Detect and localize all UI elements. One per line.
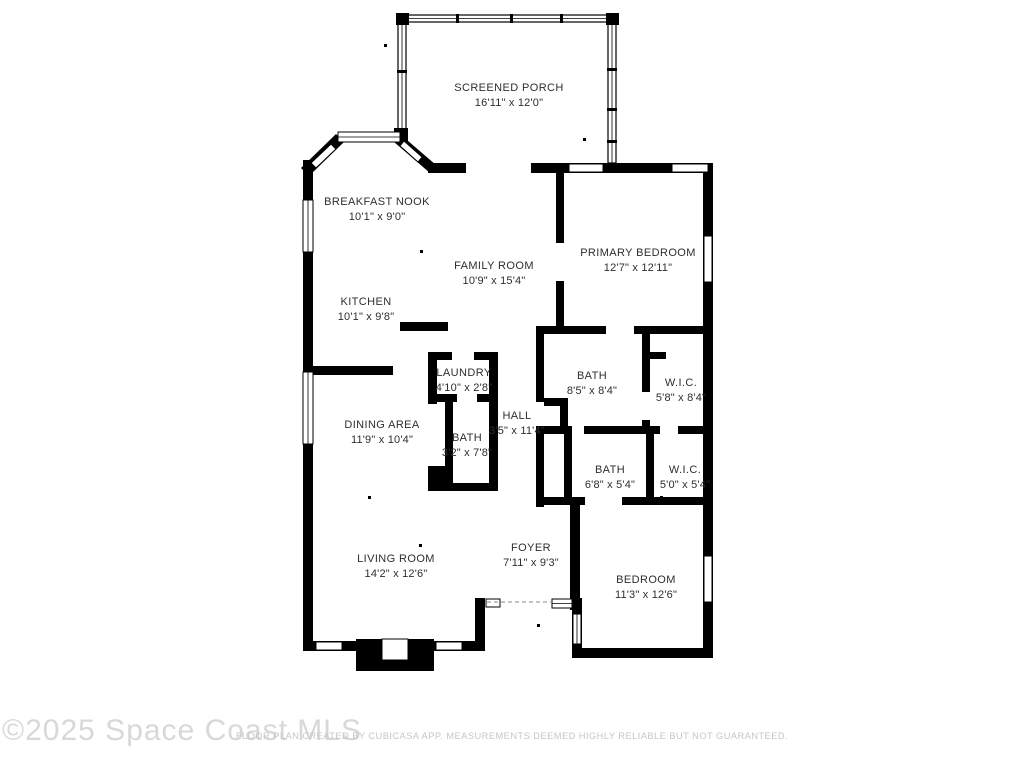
interior-walls	[303, 173, 713, 600]
dimension-ticks	[368, 44, 663, 627]
room-label-living-room: LIVING ROOM	[357, 553, 435, 565]
room-dims-bedroom: 11'3" x 12'6"	[615, 589, 677, 601]
room-label-breakfast-nook: BREAKFAST NOOK	[324, 196, 430, 208]
room-label-hall: HALL	[502, 410, 531, 422]
room-label-foyer: FOYER	[511, 542, 551, 554]
room-label-kitchen: KITCHEN	[340, 296, 391, 308]
room-label-screened-porch: SCREENED PORCH	[454, 82, 564, 94]
room-dims-wic-second: 5'0" x 5'4"	[660, 479, 710, 491]
room-dims-breakfast-nook: 10'1" x 9'0"	[349, 211, 406, 223]
room-dims-living-room: 14'2" x 12'6"	[365, 568, 428, 580]
room-label-primary-bedroom: PRIMARY BEDROOM	[580, 247, 696, 259]
room-dims-primary-bedroom: 12'7" x 12'11"	[604, 262, 672, 274]
room-label-wic-second: W.I.C.	[669, 464, 701, 476]
room-label-family-room: FAMILY ROOM	[454, 260, 534, 272]
room-dims-foyer: 7'11" x 9'3"	[503, 557, 559, 569]
room-dims-laundry: 4'10" x 2'8"	[436, 382, 493, 394]
room-dims-dining-area: 11'9" x 10'4"	[351, 434, 413, 446]
floor-plan: SCREENED PORCH16'11" x 12'0"BREAKFAST NO…	[0, 0, 1024, 768]
footer-disclaimer: FLOOR PLAN CREATED BY CUBICASA APP. MEAS…	[0, 731, 1024, 741]
fireplace	[356, 639, 434, 671]
room-dims-wic-primary: 5'8" x 8'4"	[656, 392, 706, 404]
room-dims-hall: 3'5" x 11'4"	[489, 425, 545, 437]
room-dims-kitchen: 10'1" x 9'8"	[338, 311, 395, 323]
room-dims-family-room: 10'9" x 15'4"	[463, 275, 526, 287]
room-label-bath-main: BATH	[577, 370, 607, 382]
room-label-dining-area: DINING AREA	[344, 419, 420, 431]
room-label-bedroom: BEDROOM	[616, 574, 676, 586]
room-dims-bath-main: 8'5" x 8'4"	[567, 385, 617, 397]
room-dims-screened-porch: 16'11" x 12'0"	[475, 97, 543, 109]
entry-sidelite	[486, 599, 500, 607]
room-dims-bath-second: 6'8" x 5'4"	[585, 479, 635, 491]
room-label-bath-hall: BATH	[452, 432, 482, 444]
room-dims-bath-hall: 3'2" x 7'8"	[442, 447, 492, 459]
room-label-wic-primary: W.I.C.	[665, 377, 697, 389]
room-labels: SCREENED PORCH16'11" x 12'0"BREAKFAST NO…	[324, 82, 710, 601]
room-label-bath-second: BATH	[595, 464, 625, 476]
room-label-laundry: LAUNDRY	[436, 367, 491, 379]
